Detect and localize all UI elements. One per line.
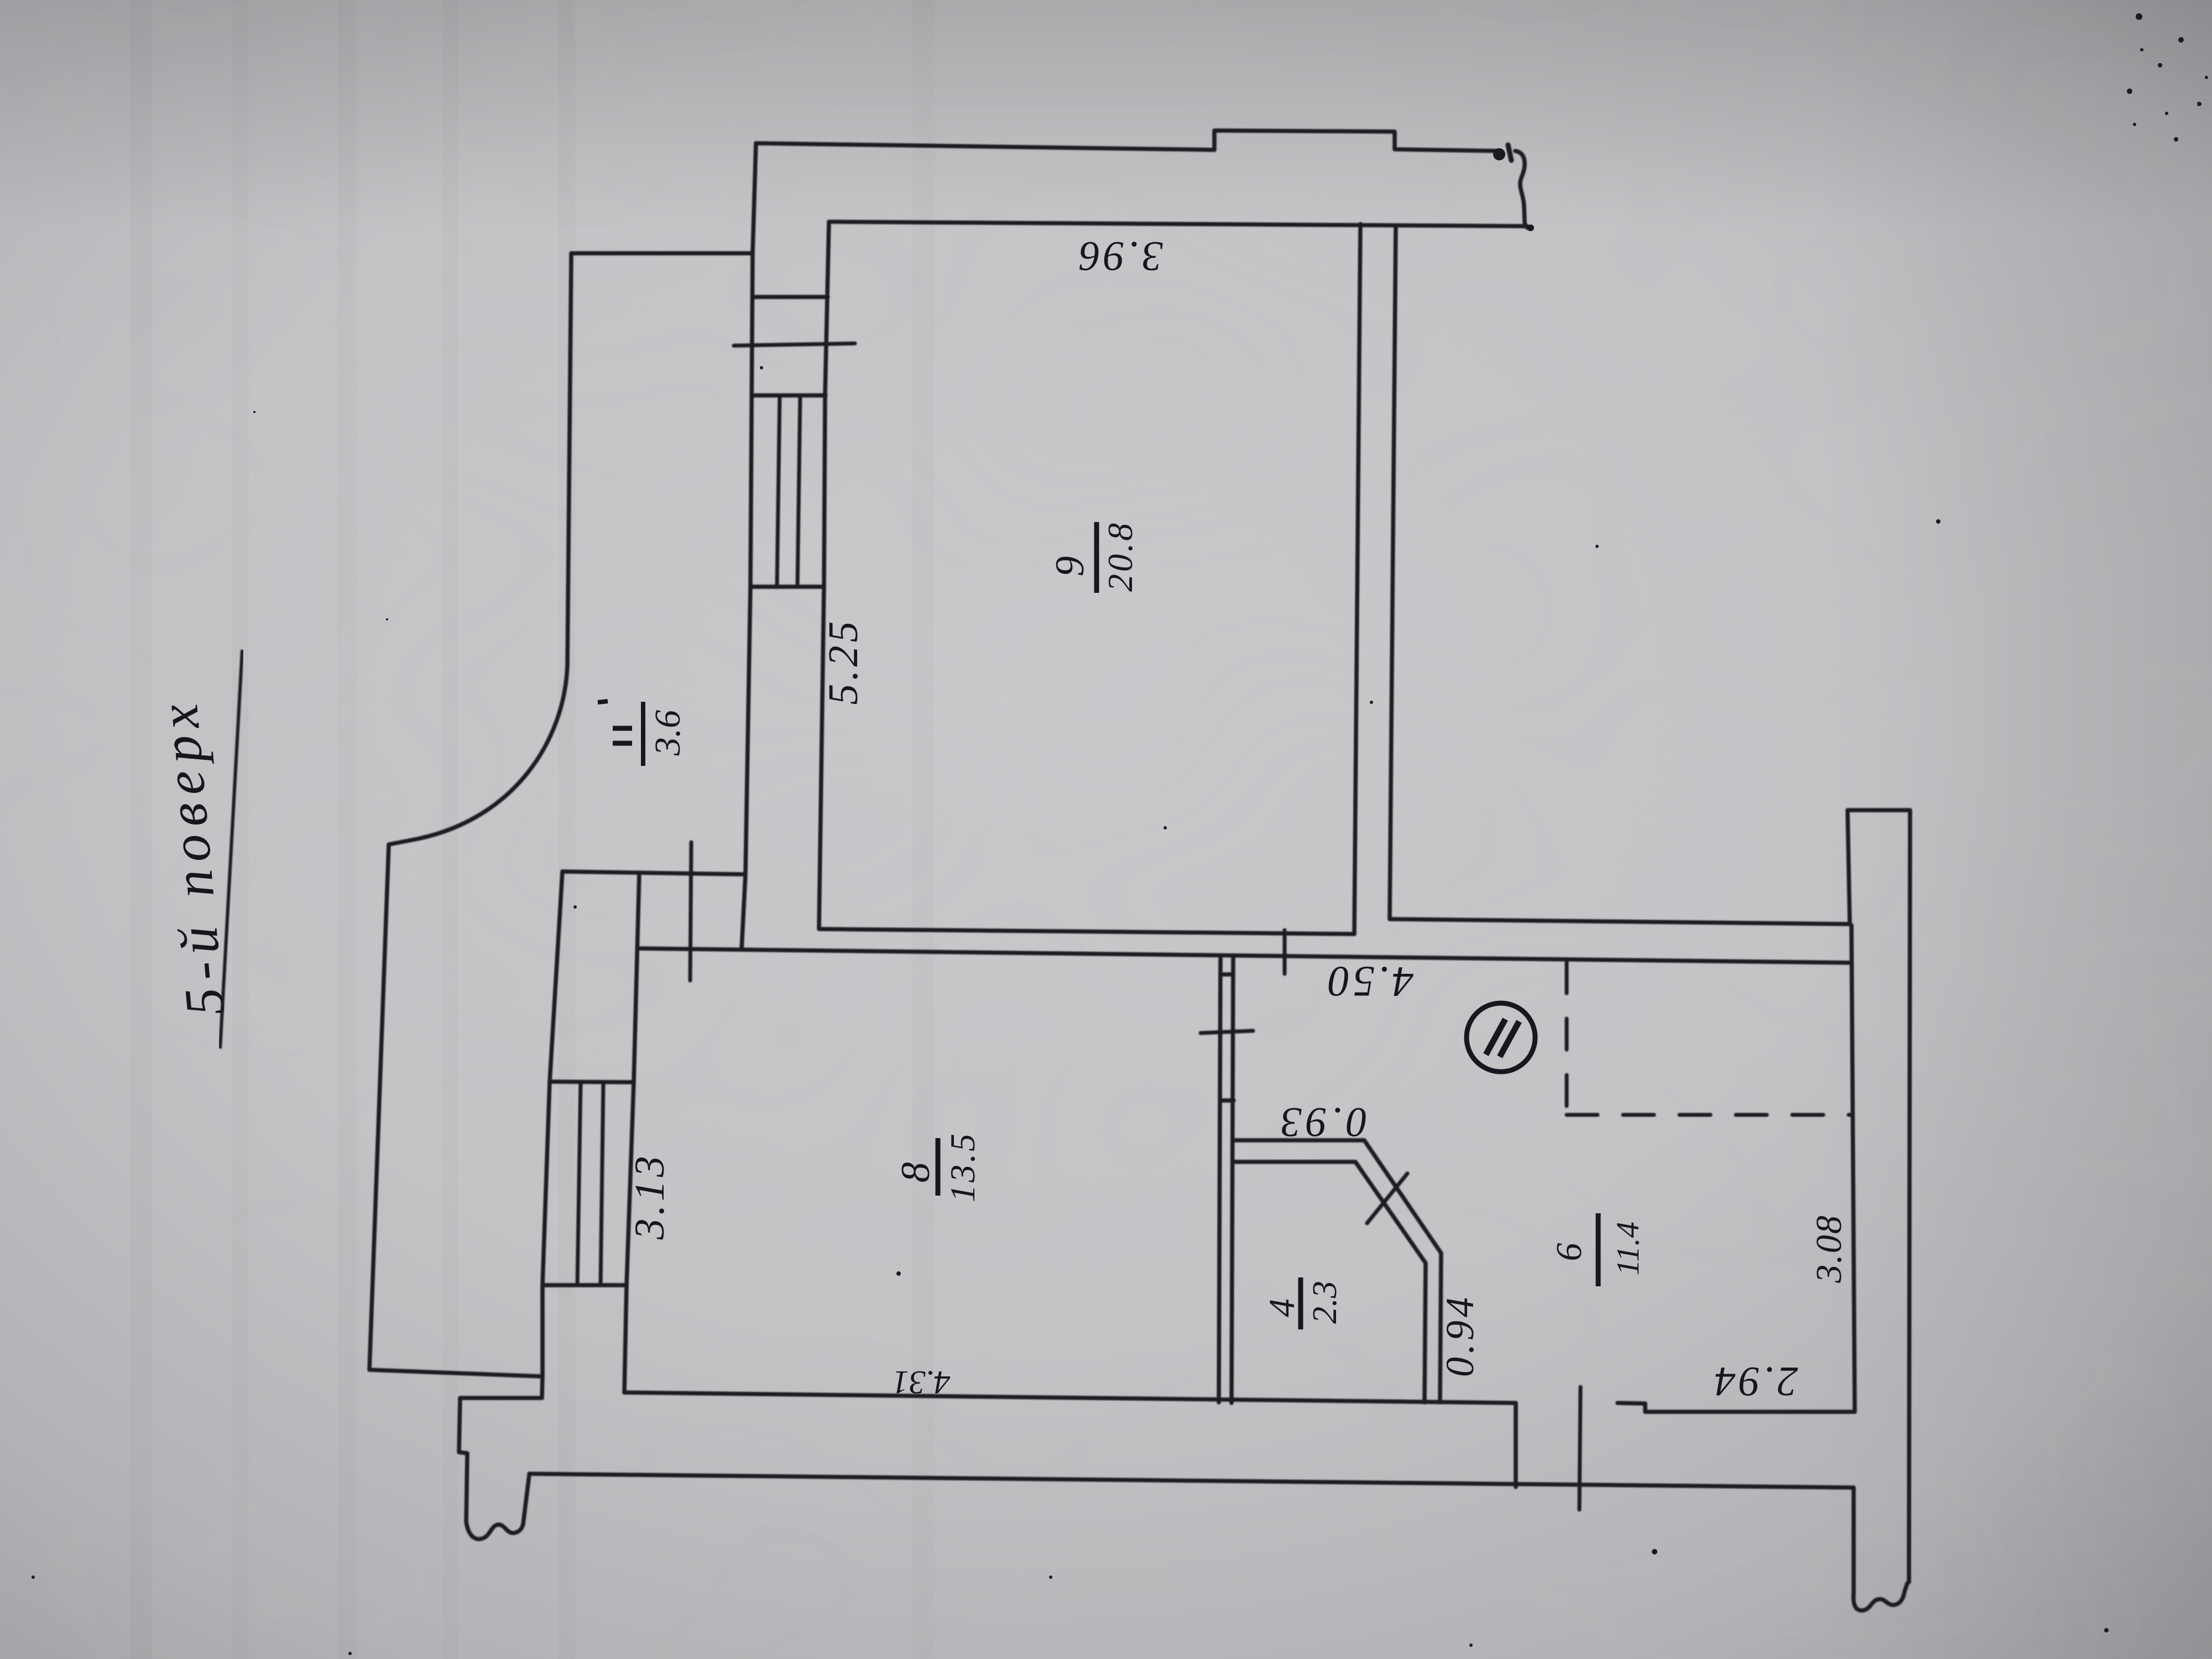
svg-text:2.3: 2.3: [1306, 1281, 1344, 1324]
svg-text:13.5: 13.5: [943, 1131, 982, 1202]
svg-text:3.6: 3.6: [648, 710, 688, 757]
svg-text:20.8: 20.8: [1100, 521, 1140, 592]
svg-text:8: 8: [893, 1162, 938, 1183]
svg-text:9: 9: [1047, 556, 1093, 577]
svg-text:4.50: 4.50: [1325, 958, 1414, 1006]
svg-text:5.25: 5.25: [820, 618, 867, 705]
svg-text:3.13: 3.13: [627, 1153, 673, 1240]
svg-text:0.93: 0.93: [1276, 1099, 1368, 1145]
svg-text:0.94: 0.94: [1438, 1294, 1482, 1377]
svg-text:4: 4: [1262, 1299, 1302, 1317]
svg-text:11.4: 11.4: [1610, 1222, 1646, 1275]
svg-text:2.94: 2.94: [1712, 1358, 1798, 1405]
svg-text:3.08: 3.08: [1809, 1214, 1849, 1284]
svg-text:3.96: 3.96: [1076, 233, 1164, 279]
svg-text:6: 6: [1549, 1243, 1589, 1261]
svg-text:4.31: 4.31: [893, 1364, 951, 1401]
